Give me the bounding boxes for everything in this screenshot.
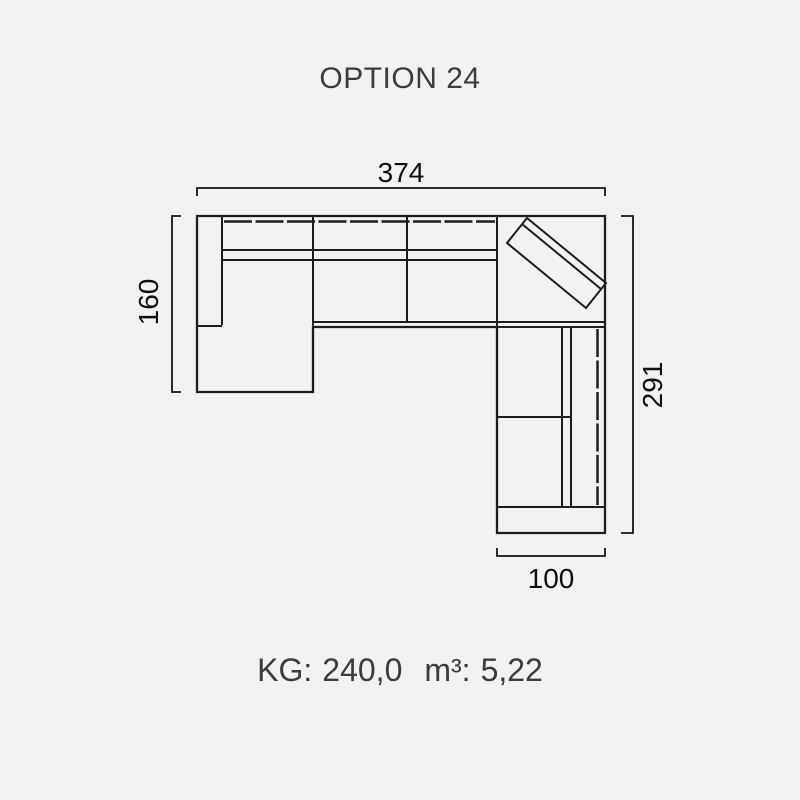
page: OPTION 24 [0,0,800,800]
dim-bracket-top [197,188,605,196]
weight-value: 240,0 [322,652,402,688]
volume-value: 5,22 [481,652,543,688]
dim-label-wing-width: 100 [528,563,575,594]
weight-label: KG: [257,652,312,688]
dim-bracket-bottom [497,548,605,556]
sofa-body-group [197,216,606,533]
dim-label-total-height: 291 [637,362,668,409]
dim-label-total-width: 374 [378,157,425,188]
footer-stats: KG:240,0m³:5,22 [0,652,800,689]
sofa-outline [197,216,605,533]
corner-cushion-seam [522,224,601,289]
corner-cushion [507,218,606,308]
dim-bracket-left [172,216,181,392]
volume-label: m³: [424,652,470,688]
dim-label-chaise-depth: 160 [133,279,164,326]
dim-bracket-right [621,216,633,533]
